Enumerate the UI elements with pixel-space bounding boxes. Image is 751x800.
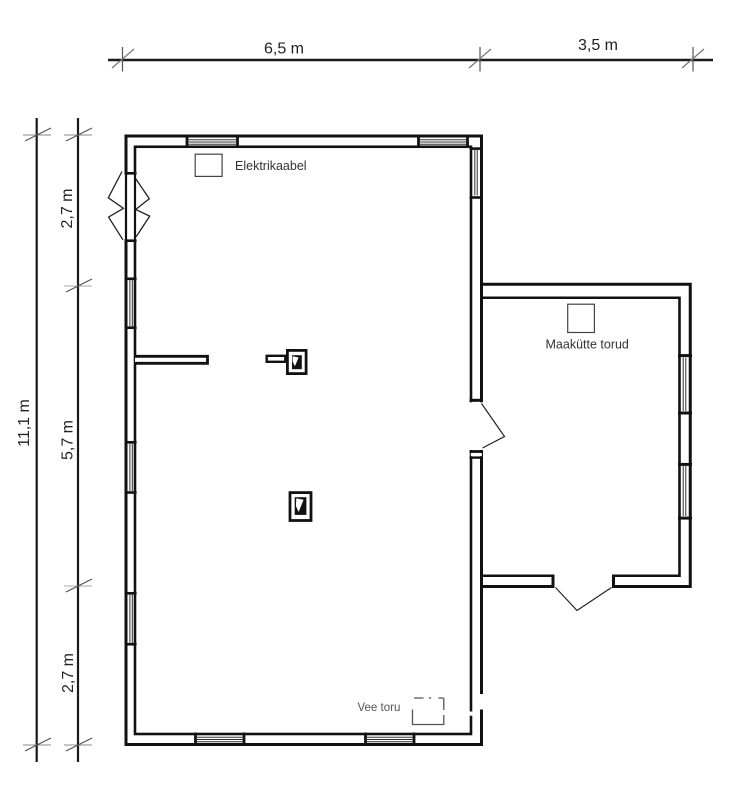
svg-text:5,7 m: 5,7 m: [60, 420, 77, 460]
svg-text:3,5 m: 3,5 m: [578, 37, 618, 54]
svg-text:Elektrikaabel: Elektrikaabel: [235, 159, 307, 173]
svg-text:2,7 m: 2,7 m: [59, 188, 76, 228]
svg-text:Vee toru: Vee toru: [358, 702, 401, 714]
svg-text:2,7 m: 2,7 m: [60, 653, 77, 693]
svg-text:11,1 m: 11,1 m: [16, 399, 33, 447]
svg-text:Maakütte torud: Maakütte torud: [546, 338, 629, 352]
svg-text:6,5 m: 6,5 m: [264, 41, 304, 58]
